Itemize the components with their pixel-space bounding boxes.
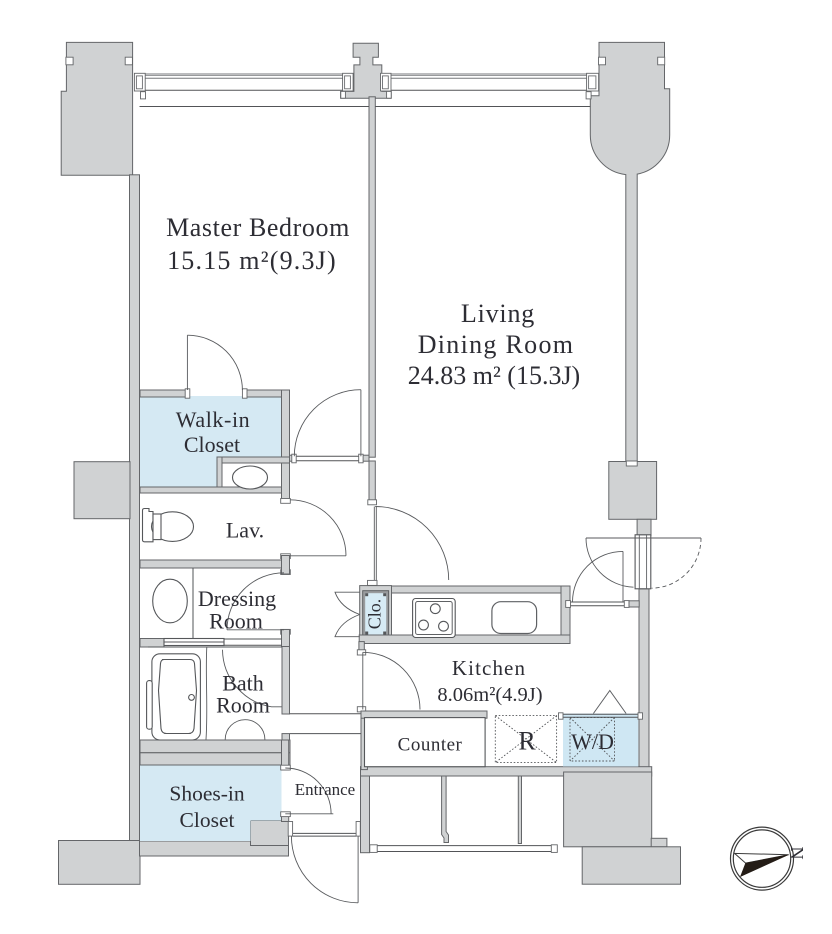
svg-text:24.83 m² (15.3J): 24.83 m² (15.3J) — [408, 361, 580, 390]
svg-text:8.06m²(4.9J): 8.06m²(4.9J) — [437, 684, 542, 706]
svg-text:Master Bedroom: Master Bedroom — [166, 213, 350, 242]
svg-text:Room: Room — [209, 609, 263, 634]
svg-text:15.15 m²(9.3J): 15.15 m²(9.3J) — [167, 246, 337, 275]
svg-text:Lav.: Lav. — [226, 518, 264, 543]
svg-text:W/D: W/D — [571, 729, 614, 754]
svg-text:Kitchen: Kitchen — [452, 656, 526, 680]
svg-text:N: N — [787, 847, 807, 860]
svg-text:Dining Room: Dining Room — [418, 330, 575, 359]
svg-text:Closet: Closet — [184, 432, 240, 457]
svg-text:Counter: Counter — [398, 735, 463, 756]
svg-text:Walk-in: Walk-in — [176, 407, 251, 432]
svg-text:Room: Room — [216, 693, 270, 718]
svg-text:R: R — [518, 727, 536, 756]
svg-text:Living: Living — [461, 299, 535, 328]
svg-text:Closet: Closet — [180, 808, 235, 832]
svg-text:Entrance: Entrance — [295, 780, 355, 799]
svg-text:Clo.: Clo. — [365, 599, 385, 630]
svg-text:Shoes-in: Shoes-in — [169, 782, 245, 806]
svg-text:Dressing: Dressing — [198, 586, 276, 611]
